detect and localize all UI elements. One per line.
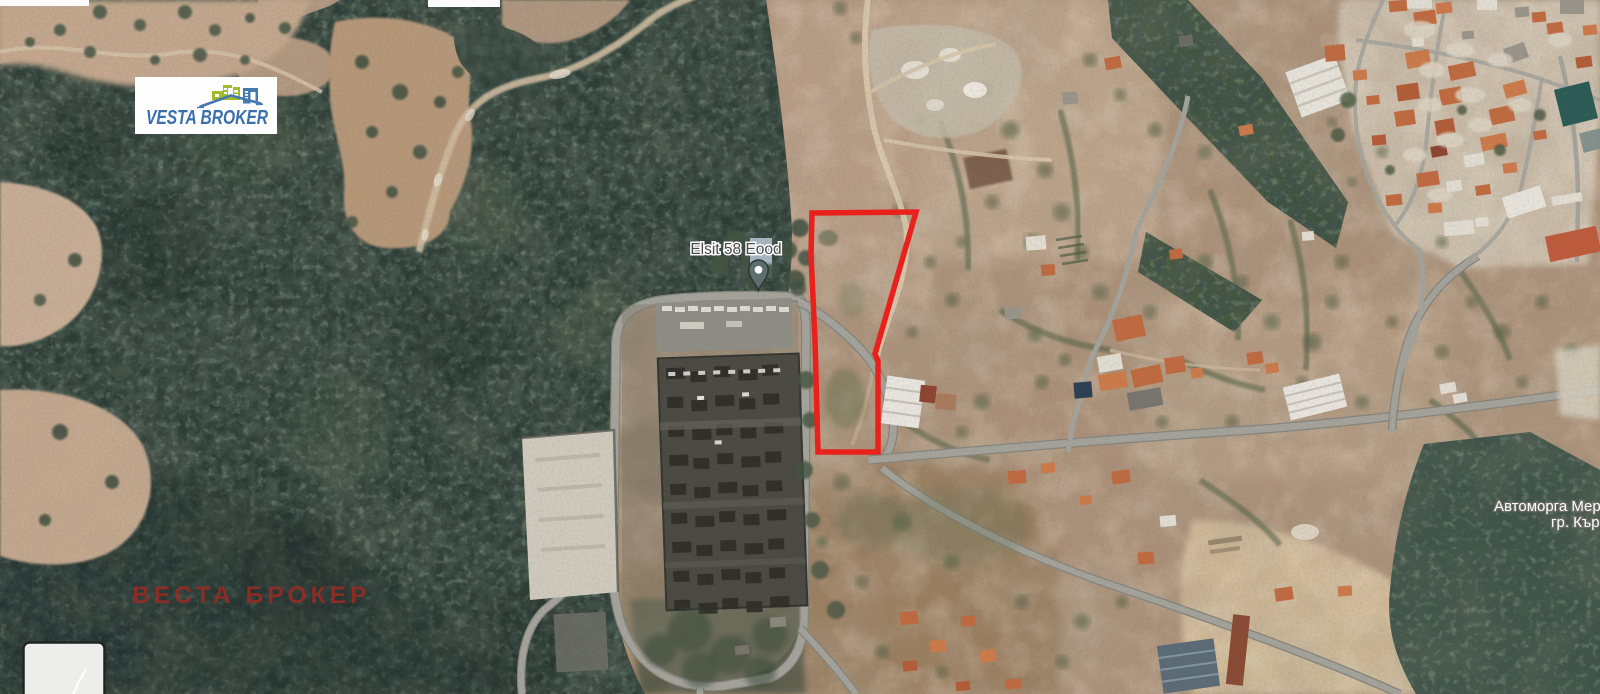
svg-text:VESTA BROKER: VESTA BROKER (146, 106, 268, 129)
svg-text:гр. Кър: гр. Кър (1551, 514, 1600, 531)
svg-text:ВЕСТА БРОКЕР: ВЕСТА БРОКЕР (132, 582, 371, 609)
svg-text:Elsit 58 Eood: Elsit 58 Eood (690, 241, 781, 258)
svg-text:Автоморга Мер: Автоморга Мер (1494, 498, 1600, 515)
